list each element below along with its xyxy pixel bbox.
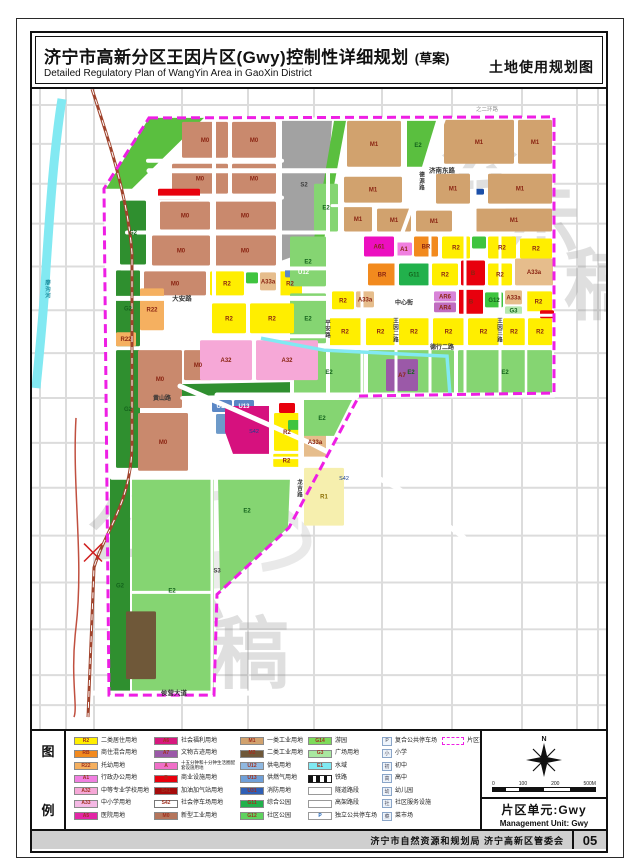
unit-label-cn: 片区单元:Gwy [501,801,586,818]
plan-draft-tag: (草案) [415,48,450,67]
svg-text:M0: M0 [194,363,203,369]
svg-text:R2: R2 [510,330,518,336]
legend-item-label: 商住混合用地 [101,750,137,756]
facility-icon: 初 [382,762,392,771]
legend-item: R22托幼用地 [74,761,149,771]
legend-item-label: 水域 [335,763,347,769]
scale-bar: 0100200500M [492,781,596,792]
svg-text:源: 源 [419,177,425,185]
svg-text:M1: M1 [430,219,439,225]
legend-item-label: 消防用地 [267,788,291,794]
svg-text:R2: R2 [377,330,385,336]
north-arrow-icon: N [492,733,596,779]
svg-text:M0: M0 [241,214,250,220]
svg-text:S42: S42 [249,429,259,435]
svg-text:R2: R2 [441,272,449,278]
svg-text:A32: A32 [220,358,232,364]
svg-text:R2: R2 [480,330,488,336]
legend-item-label: 幼儿园 [395,788,413,794]
A7-swatch: A7 [154,750,178,758]
S42-swatch: S42 [154,800,178,808]
legend-item: R2二类居住用地 [74,736,149,746]
svg-text:路: 路 [393,336,399,344]
legend-item: M2二类工业用地 [240,749,303,759]
svg-text:M1: M1 [475,140,484,146]
A33-swatch: A33 [74,800,98,808]
sheet-header: 济宁市高新分区王因片区(Gwy)控制性详细规划 (草案) Detailed Re… [32,33,606,89]
plan-title-cn: 济宁市高新分区王因片区(Gwy)控制性详细规划 [44,43,409,68]
legend-item: G11综合公园 [240,799,303,809]
svg-text:黄山路: 黄山路 [153,394,172,402]
svg-text:R2: R2 [223,281,231,287]
legend-item: U12供电用地 [240,761,303,771]
legend-item-label: 二类工业用地 [267,750,303,756]
svg-text:E2: E2 [304,316,312,322]
legend-column-5: P复合公共停车场小小学初初中高高中幼幼儿园社社区服务设施菜菜市场 [382,736,437,826]
svg-text:E2: E2 [501,370,509,376]
legend-item-label: 社会停车场用地 [181,800,223,806]
svg-text:M1: M1 [369,188,378,194]
svg-text:M1: M1 [449,187,458,193]
legend-item: A33中小学用地 [74,799,149,809]
svg-text:廖: 廖 [45,278,51,286]
svg-text:德行二路: 德行二路 [429,343,455,351]
legend-item-label: 初中 [395,763,407,769]
info-panel: N 0100200500M [480,731,606,829]
U12-swatch: U12 [240,762,264,770]
svg-text:R2: R2 [452,246,460,252]
svg-text:B: B [469,299,474,305]
legend-item-label: 高中 [395,775,407,781]
svg-text:B: B [471,271,476,277]
facility-icon: 高 [382,774,392,783]
legend-item: B商业设施用地 [154,774,235,784]
svg-text:G2: G2 [129,231,138,237]
scale-segments [492,787,596,792]
plan-title-en: Detailed Regulatory Plan of WangYin Area… [44,68,456,79]
svg-text:M0: M0 [181,214,190,220]
svg-text:R2: R2 [536,330,544,336]
svg-text:R2: R2 [283,430,291,436]
svg-text:R2: R2 [225,316,233,322]
legend-item: P复合公共停车场 [382,736,437,746]
legend-item-label: 加油加气站用地 [181,788,223,794]
M0-swatch: M0 [154,812,178,820]
svg-text:G2: G2 [124,407,133,413]
svg-text:A7: A7 [398,373,406,379]
svg-text:R2: R2 [339,298,347,304]
sheet-inner-frame: 济宁市高新分区王因片区(Gwy)控制性详细规划 (草案) Detailed Re… [30,31,608,853]
svg-text:M0: M0 [250,177,259,183]
railway-swatch [308,775,332,783]
legend-item-label: 隧道路段 [335,788,359,794]
svg-text:M0: M0 [171,281,180,287]
R22-swatch: R22 [74,762,98,770]
page-number: 05 [572,831,606,849]
svg-text:BR: BR [422,245,431,251]
legend-item-label: 综合公园 [267,800,291,806]
legend-item: M1一类工业用地 [240,736,303,746]
G14-swatch: G14 [308,737,332,745]
svg-text:A33a: A33a [261,279,276,285]
legend-item: 初初中 [382,761,437,771]
svg-text:济南东路: 济南东路 [429,166,455,175]
U31-swatch: U31 [240,787,264,795]
svg-text:U13: U13 [238,404,250,410]
map-area: 公示稿公示稿G2G2G2G2M0M0M0M0M0M0M0M0M0R2A33aR2… [32,89,606,731]
svg-text:BR: BR [378,272,387,278]
svg-text:稿: 稿 [564,242,606,329]
svg-text:M1: M1 [516,187,525,193]
svg-text:R22: R22 [120,337,132,343]
svg-text:王: 王 [393,317,399,324]
legend-column-6: 片区范围线 [442,736,480,826]
svg-text:E2: E2 [322,206,330,212]
svg-text:A33a: A33a [527,270,542,276]
svg-text:A61: A61 [373,245,385,251]
legend-item: A1行政办公用地 [74,774,149,784]
svg-text:R1: R1 [320,495,328,501]
facility-icon: P [382,737,392,746]
svg-text:德: 德 [418,171,425,179]
svg-text:A32: A32 [281,358,293,364]
B41-swatch: B41 [154,787,178,795]
svg-text:R2: R2 [445,330,453,336]
parking-icon: P [308,812,332,820]
B-swatch: B [154,775,178,783]
legend-item: 社社区服务设施 [382,799,437,809]
legend-item-label: 医院用地 [101,813,125,819]
boundary-line-swatch [442,737,464,745]
svg-text:E2: E2 [318,416,326,422]
svg-text:M1: M1 [510,218,519,224]
svg-text:S42: S42 [339,476,349,482]
svg-text:S2: S2 [300,183,308,189]
svg-text:M1: M1 [531,140,540,146]
legend-column-2: A6社会福利用地A7文物古迹用地A十五分钟和十分钟生活圈配套设施用地B商业设施用… [154,736,235,826]
legend-item-label: 中等专业学校用地 [101,788,149,794]
legend-item: 高高中 [382,774,437,784]
svg-text:R2: R2 [410,330,418,336]
svg-text:M1: M1 [354,217,363,223]
svg-text:R2: R2 [283,458,291,464]
svg-text:吉: 吉 [297,484,303,492]
legend-column-3: M1一类工业用地M2二类工业用地U12供电用地U13供燃气用地U31消防用地G1… [240,736,303,826]
svg-text:平: 平 [325,319,331,326]
svg-text:E2: E2 [414,143,422,149]
svg-text:U13: U13 [216,404,228,410]
legend-item-label: 托幼用地 [101,763,125,769]
svg-text:U12: U12 [298,270,310,276]
svg-text:R22: R22 [146,307,158,313]
legend-title-bottom: 例 [41,800,54,819]
land-use-map: 公示稿公示稿G2G2G2G2M0M0M0M0M0M0M0M0M0R2A33aR2… [32,89,606,729]
svg-text:龙: 龙 [296,478,303,486]
legend-item-label: 二类居住用地 [101,738,137,744]
legend-item: G3广场用地 [308,749,377,759]
legend-item: A32中等专业学校用地 [74,786,149,796]
svg-text:之二环路: 之二环路 [476,105,498,113]
legend-item-label: 十五分钟和十分钟生活圈配套设施用地 [181,761,235,770]
legend-item-label: 社区服务设施 [395,800,431,806]
svg-text:M0: M0 [241,248,250,254]
legend-item-label: 供电用地 [267,763,291,769]
facility-icon: 幼 [382,787,392,796]
svg-text:G3: G3 [510,308,519,314]
svg-text:M0: M0 [177,248,186,254]
legend-item: S42社会停车场用地 [154,799,235,809]
compass-box: N 0100200500M [482,731,606,799]
svg-text:A33a: A33a [308,440,323,446]
svg-text:A1: A1 [400,247,408,253]
legend-item: G12社区公园 [240,811,303,821]
legend-item-label: 行政办公用地 [101,775,137,781]
legend-item-label: 新型工业用地 [181,813,217,819]
svg-text:路: 路 [419,184,425,192]
RB-swatch: RB [74,750,98,758]
svg-text:G2: G2 [124,306,133,312]
svg-text:路: 路 [297,491,303,499]
svg-text:中心街: 中心街 [395,298,413,306]
svg-text:M0: M0 [201,138,210,144]
legend-item: U31消防用地 [240,786,303,796]
legend-item-label: 独立公共停车场 [335,813,377,819]
facility-icon: 小 [382,749,392,758]
svg-text:E2: E2 [168,588,176,594]
G12-swatch: G12 [240,812,264,820]
legend-item-label: 复合公共停车场 [395,738,437,744]
legend-item-label: 菜市场 [395,813,413,819]
svg-text:侯营大道: 侯营大道 [161,688,187,697]
legend-item: A5医院用地 [74,811,149,821]
legend-item: 菜菜市场 [382,811,437,821]
svg-text:AR4: AR4 [439,305,452,311]
A6-swatch: A6 [154,737,178,745]
legend-item-label: 小学 [395,750,407,756]
legend-item-label: 社区公园 [267,813,291,819]
legend-item-label: 铁路 [335,775,347,781]
svg-text:三: 三 [497,330,503,337]
legend-item-label: 广场用地 [335,750,359,756]
svg-text:S3: S3 [213,568,221,574]
legend-item-label: 高架路段 [335,800,359,806]
svg-text:M0: M0 [159,440,168,446]
legend-item: P独立公共停车场 [308,811,377,821]
legend-item-label: 游园 [335,738,347,744]
svg-text:G2: G2 [116,583,125,589]
legend-column-4: G14游园G3广场用地E1水域铁路隧道路段高架路段P独立公共停车场 [308,736,377,826]
M2-swatch: M2 [240,750,264,758]
legend-title-top: 图 [41,741,54,760]
legend-columns: R2二类居住用地RB商住混合用地R22托幼用地A1行政办公用地A32中等专业学校… [66,731,480,829]
legend-item: B41加油加气站用地 [154,786,235,796]
legend-item-label: 中小学用地 [101,800,131,806]
svg-text:AR6: AR6 [439,294,452,300]
svg-text:稿: 稿 [211,611,289,698]
R2-swatch: R2 [74,737,98,745]
svg-text:R2: R2 [535,299,543,305]
svg-text:R2: R2 [532,247,540,253]
legend-column-1: R2二类居住用地RB商住混合用地R22托幼用地A1行政办公用地A32中等专业学校… [74,736,149,826]
A32-swatch: A32 [74,787,98,795]
legend-item: 幼幼儿园 [382,786,437,796]
legend-title: 图 例 [32,731,66,829]
legend-item: M0新型工业用地 [154,811,235,821]
credit-text: 济宁市自然资源和规划局 济宁高新区管委会 [370,834,572,847]
svg-text:M0: M0 [196,177,205,183]
legend-item: E1水域 [308,761,377,771]
A5-swatch: A5 [74,812,98,820]
footer-bar: 济宁市自然资源和规划局 济宁高新区管委会 05 [32,831,606,849]
svg-text:G12: G12 [488,298,500,304]
svg-text:二: 二 [393,330,399,337]
svg-text:沟: 沟 [45,285,51,293]
legend-item: G14游园 [308,736,377,746]
legend-item: 铁路 [308,774,377,784]
north-label: N [541,736,546,743]
A1-swatch: A1 [74,775,98,783]
svg-text:R2: R2 [341,330,349,336]
unit-box: 片区单元:Gwy Management Unit: Gwy [482,799,606,829]
legend-item: U13供燃气用地 [240,774,303,784]
facility-icon: 社 [382,799,392,808]
svg-text:因: 因 [497,323,503,331]
svg-text:E2: E2 [304,259,312,265]
svg-text:A33a: A33a [506,295,521,301]
legend-item-label: 文物古迹用地 [181,750,217,756]
legend-item: A十五分钟和十分钟生活圈配套设施用地 [154,761,235,771]
facility-icon: 菜 [382,812,392,821]
legend-band: 图 例 R2二类居住用地RB商住混合用地R22托幼用地A1行政办公用地A32中等… [32,731,606,831]
legend-item-label: 片区范围线 [467,738,480,744]
svg-text:E2: E2 [407,370,415,376]
plan-sheet: 济宁市高新分区王因片区(Gwy)控制性详细规划 (草案) Detailed Re… [0,0,640,865]
legend-item: A7文物古迹用地 [154,749,235,759]
U13-swatch: U13 [240,775,264,783]
svg-text:M0: M0 [250,138,259,144]
svg-text:M1: M1 [370,142,379,148]
svg-text:R2: R2 [498,246,506,252]
svg-text:R2: R2 [496,272,504,278]
svg-text:G11: G11 [408,272,420,278]
legend-item-label: 社会福利用地 [181,738,217,744]
svg-text:大安路: 大安路 [172,293,192,302]
svg-text:E2: E2 [243,509,251,515]
legend-item-label: 供燃气用地 [267,775,297,781]
legend-item: 片区范围线 [442,736,480,746]
map-sheet-name: 土地使用规划图 [462,37,602,83]
legend-item: 小小学 [382,749,437,759]
svg-text:M1: M1 [390,218,399,224]
G3-swatch: G3 [308,750,332,758]
E1-swatch: E1 [308,762,332,770]
legend-item-label: 一类工业用地 [267,738,303,744]
legend-item: 隧道路段 [308,786,377,796]
A-swatch: A [154,762,178,770]
road-segment-swatch [308,800,332,808]
svg-text:路: 路 [497,336,503,344]
svg-text:路: 路 [325,331,331,339]
G11-swatch: G11 [240,800,264,808]
svg-text:安: 安 [325,325,331,333]
legend-item: 高架路段 [308,799,377,809]
legend-item-label: 商业设施用地 [181,775,217,781]
svg-text:因: 因 [393,323,399,331]
M1-swatch: M1 [240,737,264,745]
svg-text:E2: E2 [325,370,333,376]
svg-text:王: 王 [497,317,503,324]
legend-item: A6社会福利用地 [154,736,235,746]
unit-label-en: Management Unit: Gwy [500,819,588,828]
svg-text:M0: M0 [156,377,165,383]
svg-text:R2: R2 [268,316,276,322]
svg-text:河: 河 [45,291,51,299]
road-segment-swatch [308,787,332,795]
legend-item: RB商住混合用地 [74,749,149,759]
svg-text:R2: R2 [286,281,294,287]
svg-text:A33a: A33a [358,297,373,303]
